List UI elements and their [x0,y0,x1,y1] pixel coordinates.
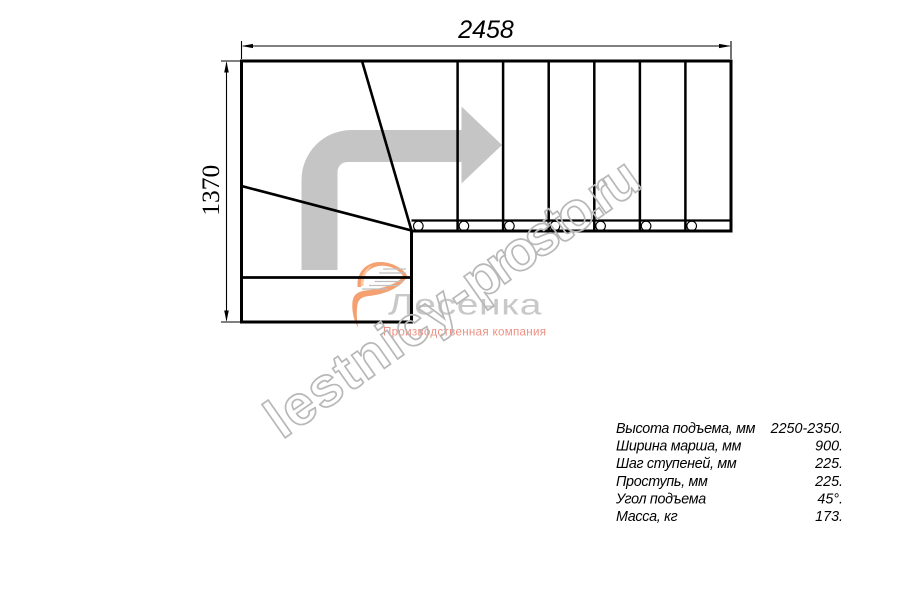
svg-text:900.: 900. [815,439,843,455]
svg-text:Ширина марша, мм: Ширина марша, мм [616,439,742,455]
svg-text:1370: 1370 [196,165,225,216]
svg-text:Угол подъема: Угол подъема [615,491,706,507]
svg-text:Масса, кг: Масса, кг [616,509,678,525]
svg-text:2458: 2458 [457,16,514,44]
svg-text:Шаг ступеней, мм: Шаг ступеней, мм [616,456,737,472]
svg-text:2250-2350.: 2250-2350. [770,421,843,437]
svg-text:173.: 173. [815,509,843,525]
svg-text:Высота подъема, мм: Высота подъема, мм [616,421,756,437]
svg-text:45°.: 45°. [817,491,843,507]
svg-text:Проступь, мм: Проступь, мм [616,474,708,490]
svg-text:225.: 225. [814,474,843,490]
svg-text:225.: 225. [814,456,843,472]
